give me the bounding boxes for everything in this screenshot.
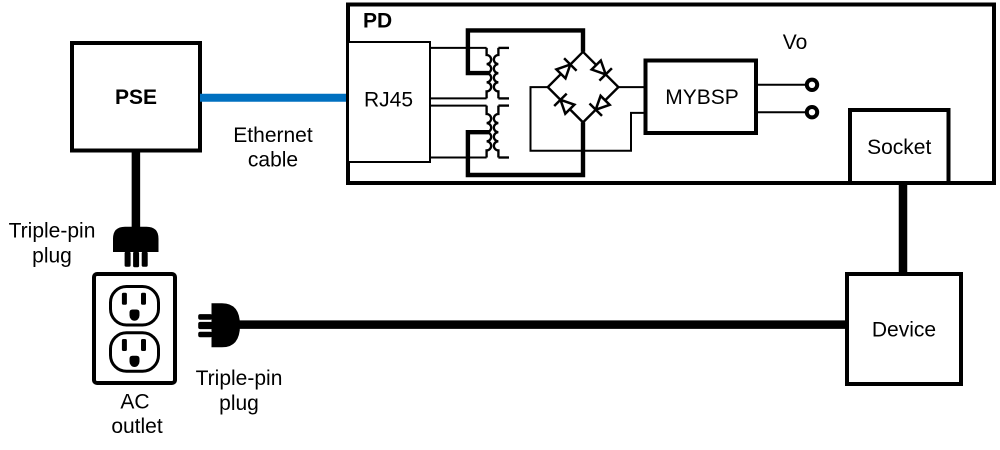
svg-text:PSE: PSE bbox=[115, 86, 157, 109]
svg-text:AC: AC bbox=[120, 391, 149, 414]
svg-text:MYBSP: MYBSP bbox=[665, 86, 739, 109]
svg-text:cable: cable bbox=[248, 149, 298, 172]
svg-text:plug: plug bbox=[32, 245, 72, 268]
svg-text:Device: Device bbox=[872, 319, 936, 342]
svg-text:PD: PD bbox=[363, 10, 392, 33]
svg-text:Triple-pin: Triple-pin bbox=[196, 367, 283, 390]
svg-text:RJ45: RJ45 bbox=[364, 89, 413, 112]
svg-text:Triple-pin: Triple-pin bbox=[9, 220, 96, 243]
svg-text:Socket: Socket bbox=[867, 136, 931, 159]
svg-text:Vo: Vo bbox=[783, 31, 808, 54]
svg-text:Ethernet: Ethernet bbox=[233, 124, 313, 147]
svg-text:plug: plug bbox=[219, 392, 259, 415]
svg-text:outlet: outlet bbox=[111, 415, 163, 438]
